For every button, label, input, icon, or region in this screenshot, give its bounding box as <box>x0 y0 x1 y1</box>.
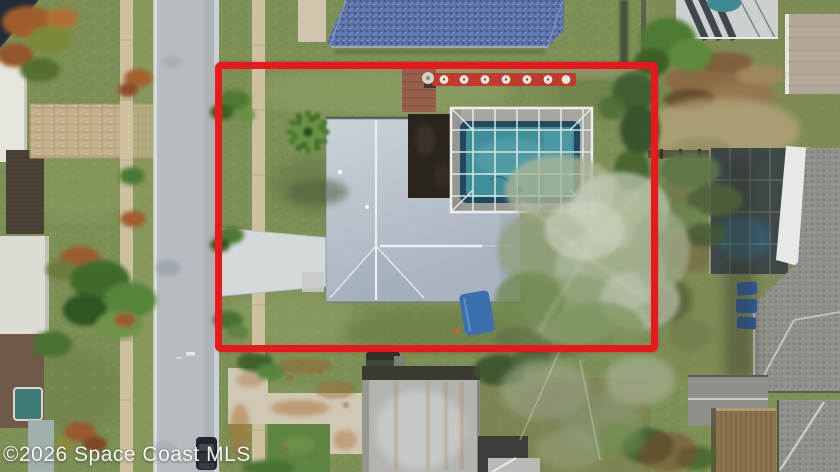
aerial-photo: ©2026 Space Coast MLS <box>0 0 840 472</box>
white-roof <box>0 236 48 334</box>
brown-roof <box>6 150 44 234</box>
bottom-house-roof <box>362 380 480 472</box>
street <box>153 0 219 472</box>
property-boundary-box <box>215 62 658 352</box>
hedge-line <box>620 0 628 64</box>
watermark: ©2026 Space Coast MLS <box>3 443 251 467</box>
neighbor-driveway <box>298 0 326 42</box>
bottom-right-shingle-roof <box>778 400 840 472</box>
neighbor-pool-small <box>14 388 42 420</box>
dark-eave <box>362 366 480 380</box>
road-marking <box>186 352 195 356</box>
wood-shed <box>711 408 776 472</box>
tan-roof-house <box>785 14 840 94</box>
